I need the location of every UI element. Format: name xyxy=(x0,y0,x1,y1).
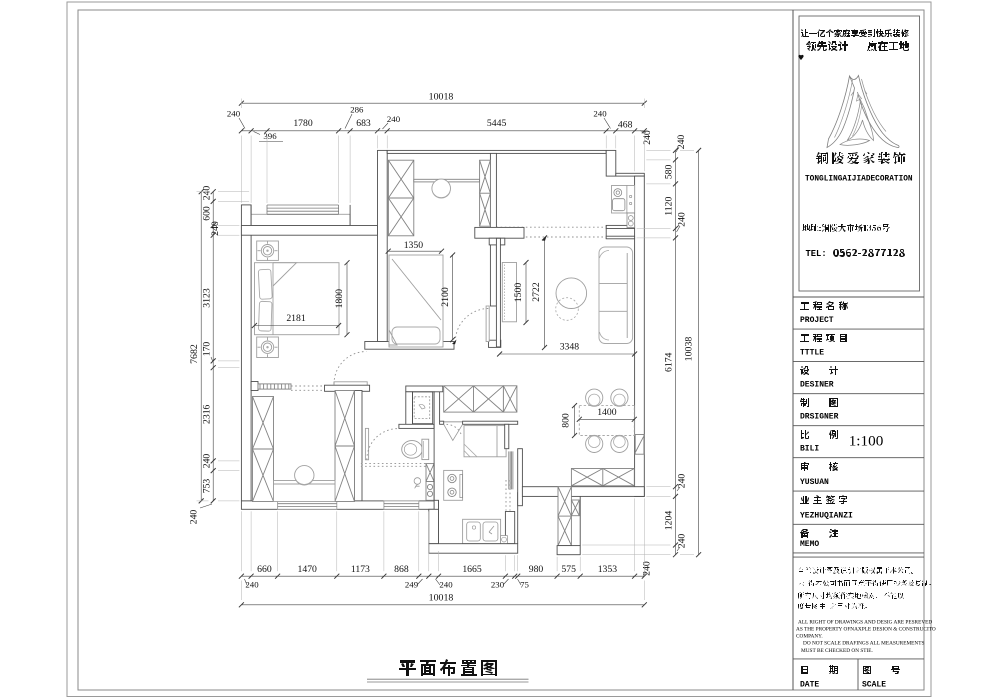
svg-text:240: 240 xyxy=(677,212,688,227)
svg-text:TTTLE: TTTLE xyxy=(800,348,824,357)
svg-text:DO NOT SCALE DRAFINGS ALL MEAS: DO NOT SCALE DRAFINGS ALL MEASUREMENTS xyxy=(803,641,924,647)
svg-text:7682: 7682 xyxy=(189,344,200,364)
svg-text:240: 240 xyxy=(227,109,241,119)
svg-text:3123: 3123 xyxy=(201,288,212,308)
svg-text:2100: 2100 xyxy=(440,287,451,307)
svg-text:240: 240 xyxy=(201,186,212,201)
svg-text:170: 170 xyxy=(201,342,212,357)
svg-text:2316: 2316 xyxy=(201,404,212,424)
svg-text:10038: 10038 xyxy=(684,337,695,362)
svg-text:800: 800 xyxy=(561,413,572,428)
svg-text:868: 868 xyxy=(394,564,409,575)
svg-text:240: 240 xyxy=(210,221,221,236)
svg-text:MUST BE CHECKED ON STIE.: MUST BE CHECKED ON STIE. xyxy=(801,648,873,654)
svg-text:240: 240 xyxy=(676,135,687,150)
svg-text:1173: 1173 xyxy=(351,564,370,575)
svg-text:1204: 1204 xyxy=(663,511,674,531)
svg-text:COMPANY.: COMPANY. xyxy=(796,634,823,640)
svg-text:2722: 2722 xyxy=(531,282,542,302)
svg-text:980: 980 xyxy=(529,564,544,575)
svg-text:249: 249 xyxy=(405,580,419,590)
svg-text:TONGLINGAIJIADECORATION: TONGLINGAIJIADECORATION xyxy=(805,176,913,184)
svg-text:468: 468 xyxy=(618,120,633,131)
svg-text:1500: 1500 xyxy=(513,283,524,303)
svg-text:YUSUAN: YUSUAN xyxy=(800,478,829,487)
svg-text:1353: 1353 xyxy=(598,564,618,575)
svg-text:5445: 5445 xyxy=(487,118,507,129)
svg-text:240: 240 xyxy=(439,580,453,590)
svg-text:1400: 1400 xyxy=(597,407,617,418)
svg-text:1120: 1120 xyxy=(663,197,674,216)
svg-text:TEL:: TEL: xyxy=(806,249,827,259)
svg-text:DATE: DATE xyxy=(800,681,819,690)
svg-text:MEMO: MEMO xyxy=(800,540,819,549)
svg-text:1470: 1470 xyxy=(298,564,318,575)
svg-text:2181: 2181 xyxy=(286,313,306,324)
svg-text:BILI: BILI xyxy=(800,445,819,454)
svg-text:1665: 1665 xyxy=(462,564,482,575)
svg-text:575: 575 xyxy=(561,564,576,575)
svg-text:240: 240 xyxy=(201,454,212,469)
svg-text:240: 240 xyxy=(387,114,401,124)
svg-text:1800: 1800 xyxy=(334,289,345,309)
svg-text:753: 753 xyxy=(201,479,212,494)
svg-text:240: 240 xyxy=(677,534,688,549)
svg-text:286: 286 xyxy=(350,105,364,115)
svg-text:75: 75 xyxy=(520,580,529,590)
svg-text:ALL RIGHT OF DRAWINGS AND DESI: ALL RIGHT OF DRAWINGS AND DESIG ARE PESR… xyxy=(798,620,932,626)
svg-text:3348: 3348 xyxy=(560,342,580,353)
svg-text:240: 240 xyxy=(677,474,688,489)
svg-text:683: 683 xyxy=(356,118,371,129)
svg-text:230: 230 xyxy=(491,580,505,590)
svg-text:1350: 1350 xyxy=(404,240,424,251)
svg-text:240: 240 xyxy=(189,510,200,525)
svg-text:10018: 10018 xyxy=(429,593,454,604)
svg-text:DRSIGNER: DRSIGNER xyxy=(800,413,839,422)
svg-text:AS THE PROPERTY OFNAXPLE DESIO: AS THE PROPERTY OFNAXPLE DESION & CONSTR… xyxy=(796,627,936,633)
svg-text:580: 580 xyxy=(663,164,674,179)
svg-text:1780: 1780 xyxy=(293,118,313,129)
svg-text:6174: 6174 xyxy=(663,352,674,372)
svg-text:396: 396 xyxy=(263,131,277,141)
svg-text:YEZHUQIANZI: YEZHUQIANZI xyxy=(800,511,853,520)
svg-text:SCALE: SCALE xyxy=(862,681,886,690)
svg-text:10018: 10018 xyxy=(429,92,454,103)
svg-text:240: 240 xyxy=(642,561,653,576)
svg-text:1:100: 1:100 xyxy=(849,433,884,450)
svg-text:240: 240 xyxy=(593,109,607,119)
svg-text:DESINER: DESINER xyxy=(800,381,834,390)
svg-text:660: 660 xyxy=(257,564,272,575)
svg-text:240: 240 xyxy=(245,580,259,590)
svg-text:PROJECT: PROJECT xyxy=(800,316,834,325)
svg-text:600: 600 xyxy=(201,206,212,221)
